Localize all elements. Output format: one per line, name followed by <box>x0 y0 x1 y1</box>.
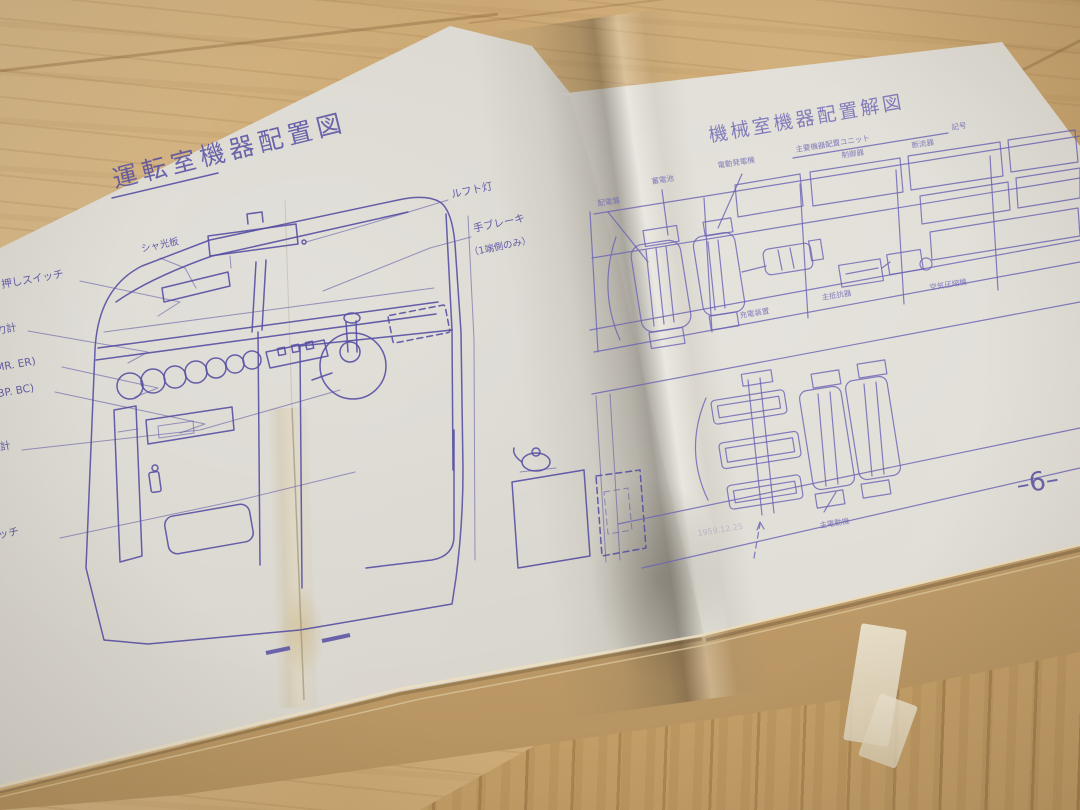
motor-generator-unit <box>608 174 824 349</box>
label-traction-motor: 主電動機 <box>819 515 851 530</box>
brake-valve-drawing <box>312 305 450 399</box>
label-gauge-mr-er: (MR. ER) <box>0 355 37 375</box>
label-distribution-panel: 配電盤 <box>597 195 621 208</box>
left-page-title: 運転室機器配置図 <box>109 108 349 194</box>
console-cabinets <box>114 330 454 588</box>
bogie-drawing-2 <box>798 360 901 512</box>
label-battery: 蓄電池 <box>651 173 675 186</box>
label-compressor: 空気圧縮機 <box>929 276 968 292</box>
label-ammeter: 電流計 <box>0 439 12 457</box>
label-hand-brake: 手ブレーキ <box>472 211 526 235</box>
cab-outline <box>86 197 475 644</box>
machine-room-grid <box>590 130 1080 568</box>
gauge-cluster <box>96 302 438 399</box>
right-page-labels: 配電盤 蓄電池 電動発電機 制御器 断流器 主抵抗器 空気圧縮機 充電装置 主電… <box>597 137 968 538</box>
overhead-panel <box>162 200 448 302</box>
left-page-number-marks <box>266 635 350 653</box>
label-pressure-gauge: 圧力計 <box>0 321 18 339</box>
label-switch: スイッチ <box>0 526 20 545</box>
label-motor-generator: 電動発電機 <box>717 154 756 170</box>
right-page-number: –6– <box>1014 464 1061 501</box>
top-labels: シャ光板 ルフト灯 手ブレーキ （1端側のみ） <box>140 180 532 291</box>
label-roof-light: ルフト灯 <box>450 180 494 201</box>
label-controller: 制御器 <box>841 147 865 160</box>
right-diagram: 機械室機器配置解図 主要機器配置ユニット 記号 <box>590 91 1080 568</box>
label-main-resistor: 主抵抗器 <box>821 287 853 302</box>
label-symbol-note: 記号 <box>951 120 967 132</box>
label-sun-visor: シャ光板 <box>140 235 180 255</box>
label-gauge-bp-bc: (BP. BC) <box>0 382 35 401</box>
left-diagram: 運転室機器配置図 <box>0 108 646 700</box>
blueprint-artwork: 運転室機器配置図 <box>0 0 1080 810</box>
label-hand-brake-note: （1端側のみ） <box>468 234 532 259</box>
page-edge-lines <box>0 545 1080 797</box>
right-page-title: 機械室機器配置解図 <box>707 91 906 147</box>
seat-sketch <box>512 394 646 568</box>
faint-pencil-note: 1959.12.25 <box>697 522 744 538</box>
label-push-switch: 押しスイッチ <box>0 267 64 291</box>
